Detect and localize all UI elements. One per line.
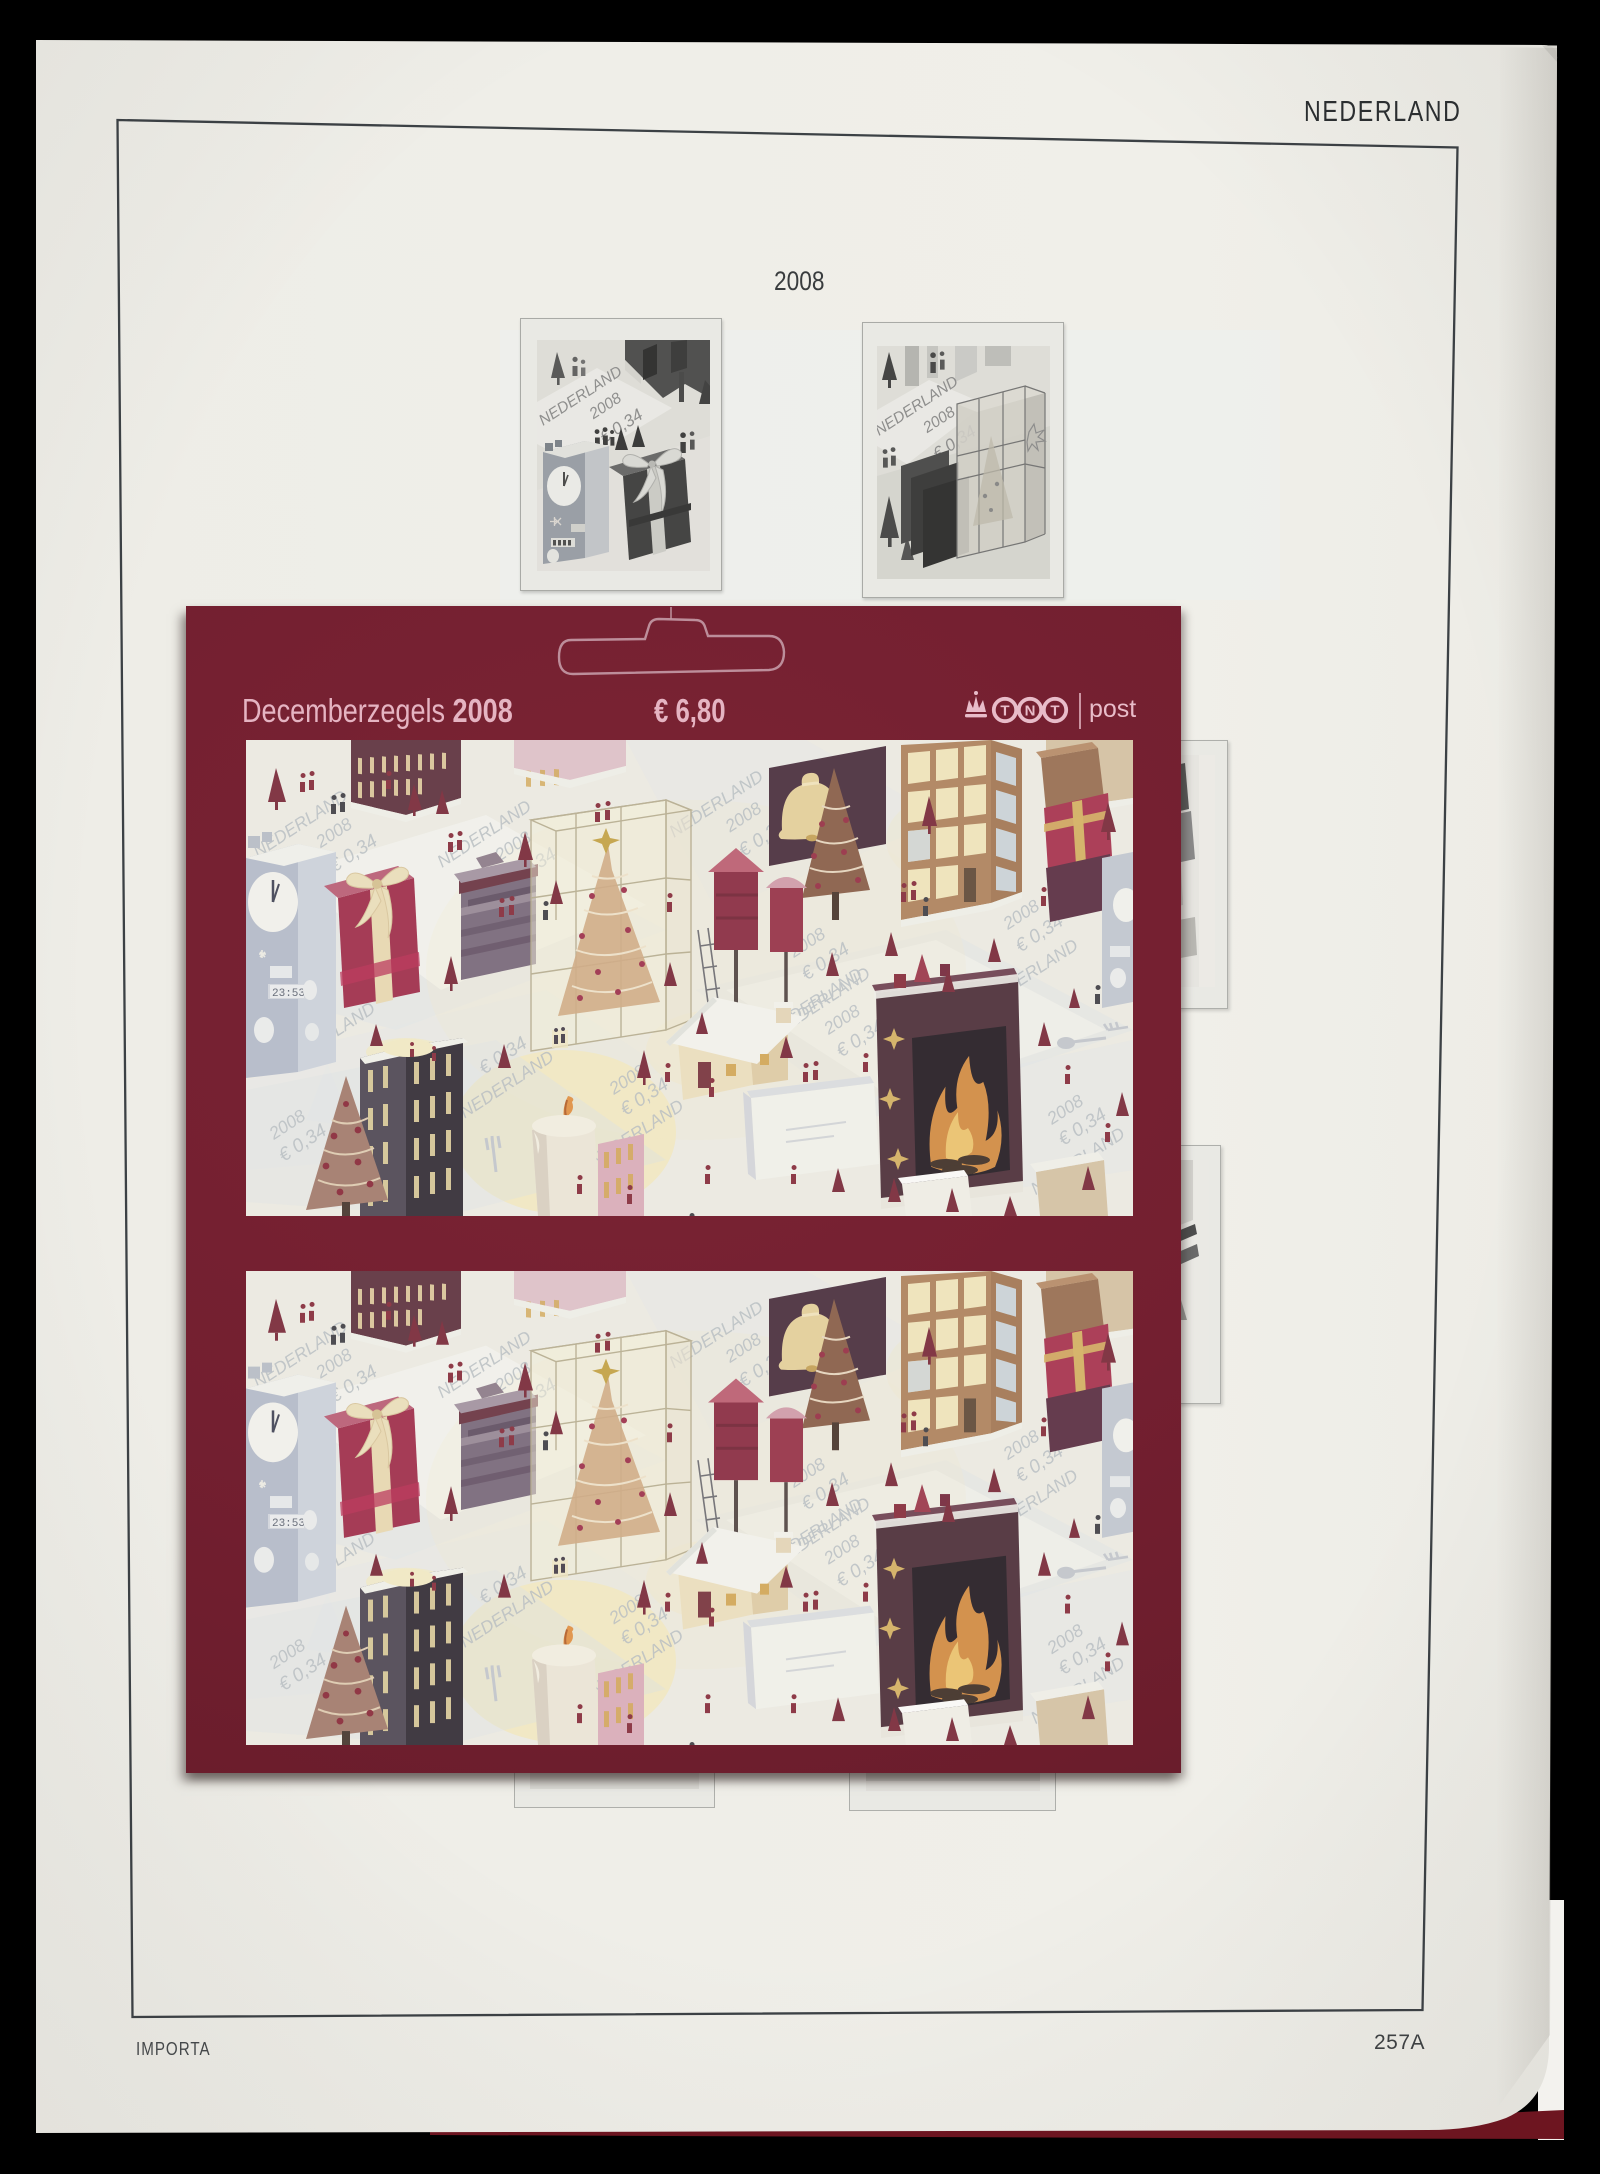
svg-text:T: T xyxy=(1000,703,1009,720)
svg-text:T: T xyxy=(1050,703,1059,720)
svg-text:post: post xyxy=(1089,695,1136,723)
svg-text:N: N xyxy=(1025,703,1036,720)
